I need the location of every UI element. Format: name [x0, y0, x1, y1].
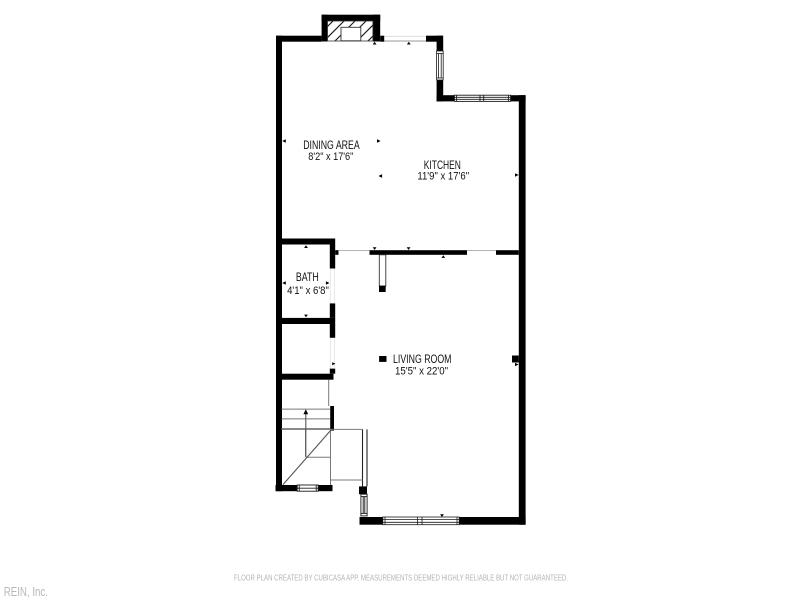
svg-text:FLOOR PLAN CREATED BY CUBICASA: FLOOR PLAN CREATED BY CUBICASA APP. MEAS…	[234, 573, 568, 583]
svg-text:LIVING ROOM: LIVING ROOM	[393, 353, 452, 366]
svg-text:15'5" x 22'0": 15'5" x 22'0"	[395, 366, 448, 378]
svg-text:4'1" x 6'8": 4'1" x 6'8"	[287, 285, 329, 297]
svg-text:11'9" x 17'6": 11'9" x 17'6"	[417, 170, 469, 182]
svg-text:8'2" x 17'6": 8'2" x 17'6"	[308, 151, 353, 163]
svg-text:BATH: BATH	[296, 271, 319, 284]
svg-text:REIN, Inc.: REIN, Inc.	[4, 584, 48, 599]
